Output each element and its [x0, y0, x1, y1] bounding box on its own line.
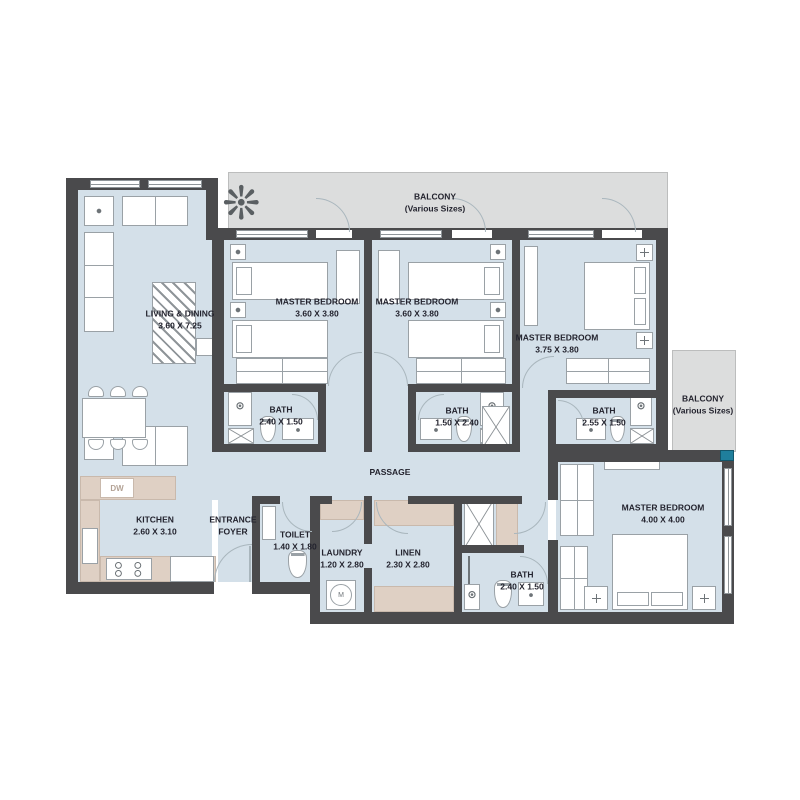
label-passage: PASSAGE [370, 466, 411, 478]
room-note: (Various Sizes) [405, 203, 465, 215]
twin-bed [408, 262, 504, 300]
pillow [236, 325, 252, 353]
wall-bath2-bottom [408, 444, 512, 452]
nightstand-lamp-icon [490, 244, 506, 260]
entry-door-leaf [249, 546, 251, 582]
wall-linen-hall [454, 500, 462, 612]
room-name: MASTER BEDROOM [376, 296, 459, 308]
nightstand-lamp-icon [230, 244, 246, 260]
room-dims: 3.60 X 3.80 [276, 308, 359, 320]
room-name: LIVING & DINING [146, 308, 215, 320]
wall-suite-left-upper [548, 462, 558, 500]
ac-unit [720, 450, 734, 461]
room-dims: 1.40 X 1.80 [273, 541, 316, 553]
room-note: (Various Sizes) [673, 405, 733, 417]
shower-icon [228, 392, 252, 426]
nightstand [692, 586, 716, 610]
room-dims: 1.50 X 2.40 [435, 417, 478, 429]
pillow [617, 592, 649, 606]
nightstand [636, 244, 653, 261]
label-balcony-right: BALCONY (Various Sizes) [673, 393, 733, 418]
nightstand [636, 332, 653, 349]
window [528, 230, 594, 238]
hall-closet [464, 500, 494, 548]
room-name: KITCHEN [133, 514, 176, 526]
label-bath-4: BATH 2.40 X 1.50 [500, 569, 543, 594]
wall-living-bedroom1 [212, 240, 224, 452]
wall-outer-right-upper [656, 228, 668, 462]
room-name: BALCONY [405, 191, 465, 203]
pillow [651, 592, 683, 606]
room-name: BATH [259, 404, 302, 416]
shower-icon [464, 584, 480, 610]
wall-suite-top [548, 450, 734, 462]
label-living-dining: LIVING & DINING 3.60 X 7.25 [146, 308, 215, 333]
room-name: TOILET [273, 529, 316, 541]
room-name: BATH [500, 569, 543, 581]
dishwasher-label: DW [110, 484, 123, 493]
room-dims: 1.20 X 2.80 [320, 559, 363, 571]
window [90, 180, 140, 188]
room-name: BATH [435, 405, 478, 417]
pillow [634, 298, 646, 325]
twin-bed [232, 262, 328, 300]
twin-bed [408, 320, 504, 358]
pillow [236, 267, 252, 295]
stove-icon [106, 558, 152, 580]
dining-chair [88, 386, 104, 397]
label-linen: LINEN 2.30 X 2.80 [386, 547, 429, 572]
nightstand-lamp-icon [490, 302, 506, 318]
wardrobe [416, 358, 506, 384]
pillow [634, 267, 646, 294]
room-dims: 2.40 X 1.50 [500, 581, 543, 593]
label-laundry: LAUNDRY 1.20 X 2.80 [320, 547, 363, 572]
window [380, 230, 442, 238]
room-dims: 2.60 X 3.10 [133, 526, 176, 538]
dresser [524, 246, 538, 326]
room-name: PASSAGE [370, 466, 411, 478]
room-dims: 2.55 X 1.50 [582, 417, 625, 429]
room-name: ENTRANCE [209, 514, 256, 526]
room-dims: 2.30 X 2.80 [386, 559, 429, 571]
double-bed [612, 534, 688, 610]
pillow [484, 267, 500, 295]
room-name: MASTER BEDROOM [516, 332, 599, 344]
label-master-bedroom-2: MASTER BEDROOM 3.60 X 3.80 [376, 296, 459, 321]
wall-passage-bottom [454, 496, 522, 504]
side-table-lamp-icon [84, 196, 114, 226]
wall-bath1-right [318, 392, 326, 452]
room-dims: 3.75 X 3.80 [516, 344, 599, 356]
room-name: MASTER BEDROOM [622, 502, 705, 514]
loveseat [122, 196, 188, 226]
label-toilet: TOILET 1.40 X 1.80 [273, 529, 316, 554]
nightstand-lamp-icon [230, 302, 246, 318]
room-name: LINEN [386, 547, 429, 559]
wall-passage-bottom [408, 496, 458, 504]
nightstand [584, 586, 608, 610]
label-master-bedroom-4: MASTER BEDROOM 4.00 X 4.00 [622, 502, 705, 527]
label-bath-1: BATH 2.40 X 1.50 [259, 404, 302, 429]
room-name: BATH [582, 405, 625, 417]
wardrobe [566, 358, 650, 384]
double-bed [584, 262, 650, 330]
room-name: FOYER [209, 526, 256, 538]
wall-suite-left-lower [548, 540, 558, 622]
wall-bath2-top [408, 384, 512, 392]
wall-outer-bottom-mid [312, 612, 556, 624]
window [236, 230, 308, 238]
dining-chair [132, 386, 148, 397]
wall-outer-bottom-foyer [252, 582, 318, 594]
shaft [630, 428, 654, 444]
wall-bath2-left [408, 392, 416, 452]
passage-closet [482, 406, 510, 448]
window [724, 468, 732, 526]
wardrobe [236, 358, 328, 384]
plant-icon: ❊ [222, 180, 261, 226]
kitchen-appliance [170, 556, 214, 582]
dining-table [82, 398, 146, 438]
sofa [84, 232, 114, 332]
label-master-bedroom-1: MASTER BEDROOM 3.60 X 3.80 [276, 296, 359, 321]
label-entrance-foyer: ENTRANCE FOYER [209, 514, 256, 539]
floor-plan: ❊ DW [0, 0, 800, 800]
wardrobe [560, 464, 594, 536]
shaft [228, 428, 254, 444]
label-balcony-top: BALCONY (Various Sizes) [405, 191, 465, 216]
dishwasher: DW [100, 478, 134, 498]
label-bath-2: BATH 1.50 X 2.40 [435, 405, 478, 430]
room-dims: 2.40 X 1.50 [259, 416, 302, 428]
room-dims: 3.60 X 3.80 [376, 308, 459, 320]
label-bath-3: BATH 2.55 X 1.50 [582, 405, 625, 430]
washer-drum-icon: M [330, 584, 352, 606]
washer-label: M [338, 592, 344, 599]
wall-outer-bottom-left [66, 582, 214, 594]
room-name: LAUNDRY [320, 547, 363, 559]
pillow [484, 325, 500, 353]
linen-shelf-bottom [374, 586, 454, 612]
window [148, 180, 202, 188]
dining-chair [110, 386, 126, 397]
label-master-bedroom-3: MASTER BEDROOM 3.75 X 3.80 [516, 332, 599, 357]
wall-outer-bottom-right [548, 612, 734, 624]
twin-bed [232, 320, 328, 358]
kitchen-sink [82, 528, 98, 564]
room-name: BALCONY [673, 393, 733, 405]
wall-bath1-bottom [224, 444, 326, 452]
room-dims: 4.00 X 4.00 [622, 514, 705, 526]
room-dims: 3.60 X 7.25 [146, 320, 215, 332]
wall-bedroom1-2 [364, 240, 372, 452]
wall-bath3-top [548, 390, 656, 398]
window [724, 536, 732, 594]
washing-machine: M [326, 580, 356, 610]
room-name: MASTER BEDROOM [276, 296, 359, 308]
label-kitchen: KITCHEN 2.60 X 3.10 [133, 514, 176, 539]
wall-bath4-top [458, 545, 524, 553]
wall-outer-left [66, 178, 78, 594]
wall-bath1-top [224, 384, 326, 392]
wall-laundry-linen-upper [364, 496, 372, 544]
